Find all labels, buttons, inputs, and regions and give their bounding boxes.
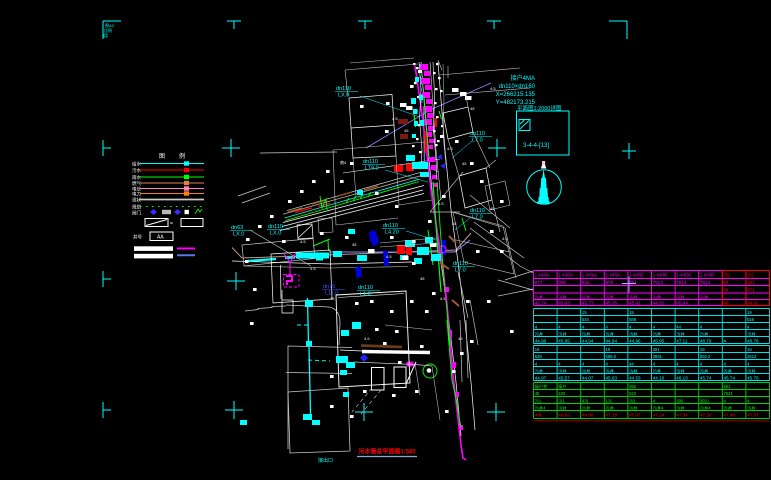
svg-text:污井: 污井 [535,367,543,374]
svg-text:45: 45 [458,336,463,341]
svg-text:539: 539 [535,354,543,359]
svg-text:污1: 污1 [535,397,542,404]
svg-text:4.5: 4.5 [490,86,496,91]
svg-text:4.5: 4.5 [440,296,446,301]
svg-text:45.75: 45.75 [747,375,759,380]
svg-text:47.39: 47.39 [700,413,712,418]
svg-text:7021: 7021 [724,391,734,396]
svg-text:985: 985 [558,280,566,285]
svg-text:污井: 污井 [629,367,637,374]
svg-text:4.5: 4.5 [300,239,306,244]
svg-text:44.94: 44.94 [606,338,618,343]
svg-text:45: 45 [352,242,357,247]
svg-text:≡: ≡ [724,338,727,343]
svg-text:84: 84 [724,280,730,285]
svg-text:LX.0: LX.0 [233,232,244,238]
svg-text:dn110: dn110 [336,86,351,92]
svg-text:19: 19 [606,347,611,352]
svg-text:污井: 污井 [629,330,637,337]
svg-text:污井: 污井 [582,330,590,337]
svg-text:7913: 7913 [653,280,664,285]
svg-text:阀门: 阀门 [132,210,141,217]
svg-text:45.95: 45.95 [653,338,665,343]
svg-text:污井: 污井 [606,330,614,337]
svg-text:7624: 7624 [700,280,711,285]
svg-text:4.5: 4.5 [438,201,444,206]
svg-text:1-X4/9C: 1-X4/9C [653,273,668,278]
svg-text:44.92: 44.92 [653,300,665,305]
svg-text:南4: 南4 [340,159,347,165]
svg-text:19: 19 [747,310,752,315]
svg-text:19: 19 [582,310,587,315]
svg-text:261: 261 [747,280,755,285]
svg-text:3-4-4-[13]: 3-4-4-[13] [523,143,549,149]
svg-text:44.96: 44.96 [535,338,547,343]
svg-text:45.84: 45.84 [676,300,688,305]
svg-text:588: 588 [629,317,637,322]
svg-text:534: 534 [582,317,590,322]
svg-text:871: 871 [747,288,755,293]
svg-text:7912: 7912 [676,280,687,285]
svg-text:44.96: 44.96 [629,338,641,343]
svg-text:L7.0: L7.0 [472,138,483,144]
svg-text:井号: 井号 [133,234,142,241]
svg-text:45.63: 45.63 [606,375,618,380]
svg-text:45: 45 [452,221,457,226]
svg-text:561: 561 [724,384,732,389]
svg-text:592.2: 592.2 [700,354,711,359]
svg-text:45: 45 [404,128,409,133]
svg-text:污井: 污井 [558,367,566,374]
svg-text:44.94: 44.94 [582,338,594,343]
svg-text:4.5: 4.5 [502,236,508,241]
svg-text:L7.0: L7.0 [455,268,466,274]
svg-text:污井: 污井 [653,367,661,374]
svg-text:L1.0: L1.0 [360,292,371,298]
svg-text:污井: 污井 [700,294,708,301]
svg-text:44.53: 44.53 [629,375,641,380]
svg-text:L4.20: L4.20 [385,230,399,236]
svg-text:45.93: 45.93 [558,300,570,305]
svg-text:dn110: dn110 [453,261,468,267]
svg-text:44: 44 [629,361,634,366]
svg-text:污井: 污井 [653,330,661,337]
svg-text:3921: 3921 [700,398,710,403]
svg-text:LX.0: LX.0 [270,231,281,237]
svg-text:45: 45 [724,300,730,305]
svg-text:4污: 4污 [582,397,589,404]
svg-text:45.91: 45.91 [629,300,641,305]
svg-text:44.10: 44.10 [653,375,665,380]
svg-text:44.98: 44.98 [582,413,594,418]
svg-text:污井: 污井 [724,367,732,374]
svg-text:污井: 污井 [724,405,732,412]
svg-text:4.5: 4.5 [310,266,316,271]
svg-text:44: 44 [676,324,681,329]
svg-text:19: 19 [629,310,634,315]
svg-text:762: 762 [724,273,732,278]
svg-text:1-X4/9F: 1-X4/9F [700,273,715,278]
svg-text:3891: 3891 [653,354,663,359]
svg-text:污井: 污井 [747,367,755,374]
svg-text:19: 19 [535,347,540,352]
svg-text:接出口: 接出口 [318,457,333,464]
svg-text:1-X4/9A: 1-X4/9A [606,273,621,278]
svg-text:接户4MA: 接户4MA [511,74,535,82]
svg-text:污井4: 污井4 [535,405,546,412]
svg-text:390: 390 [676,398,684,403]
svg-text:dn110: dn110 [470,131,485,137]
svg-text:dn110: dn110 [358,285,373,291]
svg-text:589.0: 589.0 [606,354,617,359]
svg-text:45.76: 45.76 [606,300,618,305]
svg-text:污井: 污井 [747,330,755,337]
svg-text:526: 526 [747,317,755,322]
svg-text:391: 391 [653,347,661,352]
svg-text:dn110: dn110 [268,224,283,230]
svg-text:4.5: 4.5 [386,254,392,259]
svg-text:污井: 污井 [582,405,590,412]
svg-text:污井: 污井 [558,330,566,337]
svg-text:接户: 接户 [558,383,566,390]
svg-text:19: 19 [747,347,752,352]
svg-text:45: 45 [490,206,495,211]
svg-text:19: 19 [700,347,705,352]
svg-text:4污: 4污 [535,412,543,419]
svg-text:AA: AA [157,235,164,241]
svg-text:45.57: 45.57 [558,375,570,380]
svg-text:Y=482173.215: Y=482173.215 [496,100,536,106]
svg-text:4.5: 4.5 [364,336,370,341]
svg-text:47.34: 47.34 [676,413,688,418]
svg-text:1-X4/9A: 1-X4/9A [582,273,597,278]
svg-text:979: 979 [606,280,614,285]
svg-text:45: 45 [470,106,475,111]
svg-text:dn110: dn110 [363,159,378,165]
svg-text:1-X4/9C: 1-X4/9C [629,273,644,278]
svg-text:dn110: dn110 [383,223,398,229]
svg-text:接户井: 接户井 [535,383,548,390]
svg-text:污井: 污井 [676,367,684,374]
svg-text:48.79: 48.79 [700,338,712,343]
svg-text:977: 977 [535,280,543,285]
svg-text:例: 例 [179,152,185,160]
svg-text:45.73: 45.73 [582,300,594,305]
svg-text:44.07: 44.07 [582,375,594,380]
svg-text:44.97: 44.97 [535,375,547,380]
svg-text:45.74: 45.74 [535,300,547,305]
svg-text:污井: 污井 [582,367,590,374]
svg-text:47.24: 47.24 [653,413,665,418]
svg-text:dn110: dn110 [470,208,485,214]
svg-text:dn63: dn63 [231,225,243,231]
svg-text:污1: 污1 [558,397,565,404]
svg-text:污井: 污井 [606,367,614,374]
svg-text:47.67: 47.67 [747,413,759,418]
svg-text:污井: 污井 [558,405,566,412]
svg-text:45: 45 [420,276,425,281]
svg-text:251: 251 [747,273,755,278]
svg-text:47.28: 47.28 [606,413,618,418]
svg-text:污井: 污井 [535,330,543,337]
svg-text:1-X4/9C: 1-X4/9C [676,273,691,278]
svg-text:污井: 污井 [700,330,708,337]
svg-text:45: 45 [330,296,335,301]
svg-text:=: = [170,221,173,227]
svg-text:污井4: 污井4 [700,405,711,412]
svg-text:污1: 污1 [629,397,636,404]
svg-text:47.11: 47.11 [676,338,688,343]
svg-text:污井: 污井 [676,330,684,337]
svg-text:比例: 比例 [104,27,112,33]
svg-text:46.10: 46.10 [676,375,688,380]
svg-text:45: 45 [462,161,467,166]
svg-text:污井: 污井 [700,367,708,374]
svg-text:1-X4/9A: 1-X4/9A [535,273,550,278]
svg-text:942: 942 [582,280,590,285]
svg-text:47.97: 47.97 [629,413,641,418]
svg-text:1-X4/9A: 1-X4/9A [558,273,573,278]
svg-text:污水管总平面图1:500: 污水管总平面图1:500 [358,448,416,456]
svg-text:4.5: 4.5 [392,116,398,121]
svg-text:981: 981 [629,280,637,285]
svg-text:47.49: 47.49 [724,413,736,418]
svg-text:污井4: 污井4 [653,405,664,412]
svg-text:48.79: 48.79 [747,338,759,343]
svg-text:4.5: 4.5 [447,146,453,151]
svg-text:592: 592 [629,384,637,389]
svg-text:污井: 污井 [747,405,755,412]
svg-text:污井: 污井 [606,405,614,412]
svg-text:44.92: 44.92 [747,300,759,305]
svg-text:45.74: 45.74 [700,375,712,380]
svg-text:100: 100 [558,391,566,396]
svg-text:X=266215.135: X=266215.135 [496,92,536,98]
svg-text:45: 45 [535,391,540,396]
svg-text:dn75: dn75 [323,284,335,290]
svg-text:2512: 2512 [747,354,757,359]
svg-text:522: 522 [629,391,637,396]
svg-text:34: 34 [724,288,730,293]
svg-text:LT9.0: LT9.0 [365,166,379,172]
svg-text:1污: 1污 [606,397,613,404]
svg-text:45.95: 45.95 [558,338,570,343]
svg-text:污井: 污井 [676,405,684,412]
svg-text:46.63: 46.63 [558,413,570,418]
svg-text:45.74: 45.74 [724,375,736,380]
svg-text:图: 图 [159,153,165,160]
svg-text:LX.0: LX.0 [338,93,349,99]
svg-text:污井: 污井 [629,405,637,412]
